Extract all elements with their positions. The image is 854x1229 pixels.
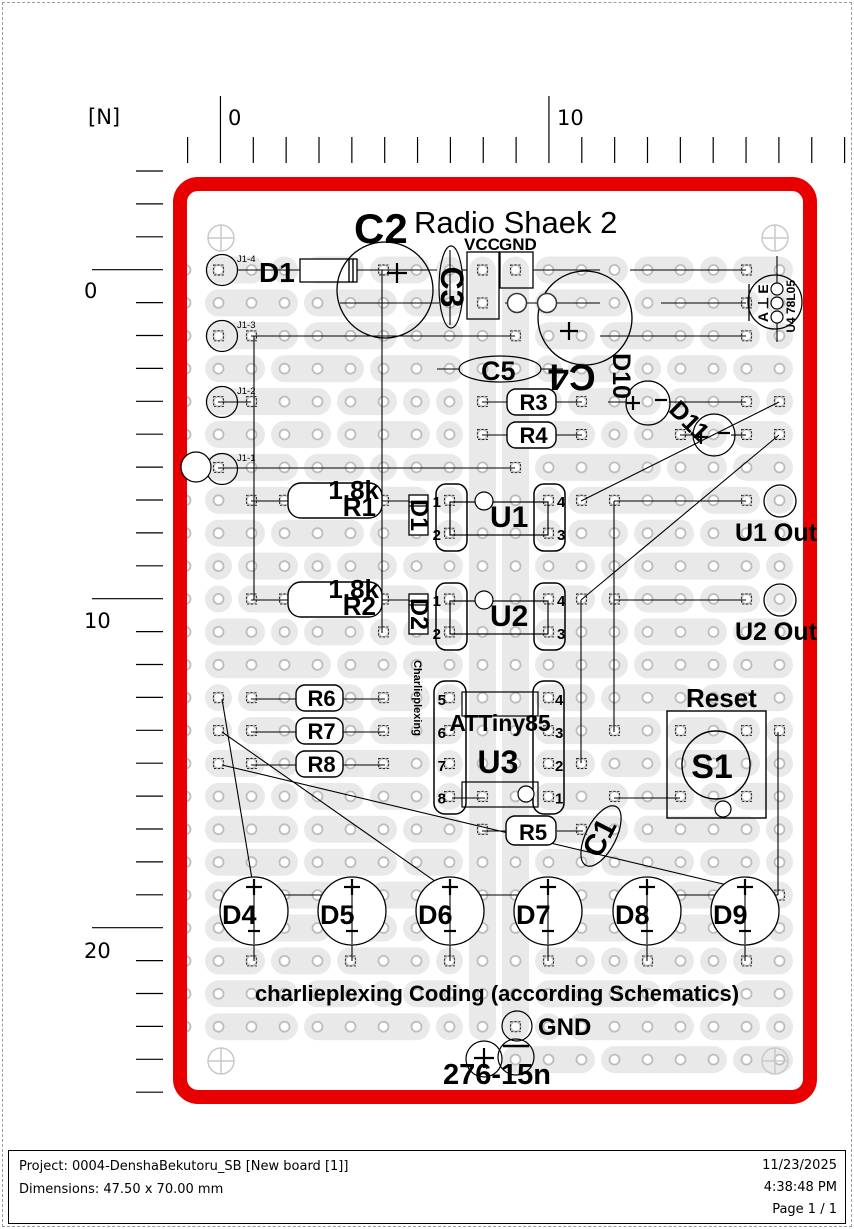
pin-number: 8 bbox=[438, 791, 446, 808]
hole bbox=[412, 824, 422, 834]
hole bbox=[280, 1022, 290, 1032]
hole bbox=[346, 693, 356, 703]
hole bbox=[445, 430, 455, 440]
pin-number: 3 bbox=[555, 725, 563, 742]
hole bbox=[577, 956, 587, 966]
hole bbox=[478, 791, 488, 801]
hole bbox=[775, 759, 785, 769]
pin-number: 3 bbox=[557, 626, 565, 643]
hole bbox=[742, 824, 752, 834]
hole bbox=[214, 265, 224, 275]
ref-D10: D10 bbox=[607, 353, 635, 399]
hole bbox=[280, 857, 290, 867]
led-ref: D8 bbox=[615, 900, 650, 930]
regulator-pin bbox=[771, 297, 783, 309]
led-ref: D5 bbox=[320, 900, 355, 930]
switch-label: Reset bbox=[686, 683, 757, 713]
hole bbox=[379, 857, 389, 867]
ref-C5: C5 bbox=[481, 356, 516, 386]
hole bbox=[676, 726, 686, 736]
footer-time: 4:38:48 PM bbox=[762, 1177, 837, 1199]
hole bbox=[511, 857, 521, 867]
pin-number: 4 bbox=[555, 692, 564, 709]
hole bbox=[643, 627, 653, 637]
hole bbox=[445, 462, 455, 472]
hole bbox=[709, 791, 719, 801]
hole bbox=[709, 364, 719, 374]
hole bbox=[313, 660, 323, 670]
hole bbox=[643, 791, 653, 801]
hole bbox=[709, 528, 719, 538]
hole bbox=[577, 1055, 587, 1065]
hole bbox=[247, 956, 257, 966]
hole bbox=[544, 759, 554, 769]
hole bbox=[709, 1022, 719, 1032]
hole bbox=[643, 561, 653, 571]
hole bbox=[709, 857, 719, 867]
hole bbox=[379, 627, 389, 637]
hole bbox=[610, 1022, 620, 1032]
footer-date: 11/23/2025 bbox=[762, 1155, 837, 1177]
hole bbox=[247, 693, 257, 703]
hole bbox=[280, 430, 290, 440]
hole bbox=[775, 693, 785, 703]
hole bbox=[313, 528, 323, 538]
hole bbox=[247, 759, 257, 769]
output-label: U1 Out bbox=[735, 519, 818, 547]
hole bbox=[412, 561, 422, 571]
hole bbox=[577, 561, 587, 571]
hole bbox=[511, 956, 521, 966]
hole bbox=[313, 561, 323, 571]
hole bbox=[643, 397, 653, 407]
hole bbox=[742, 364, 752, 374]
hole bbox=[511, 462, 521, 472]
hole bbox=[346, 726, 356, 736]
hole bbox=[280, 660, 290, 670]
hole bbox=[478, 627, 488, 637]
hole bbox=[445, 693, 455, 703]
hole bbox=[478, 561, 488, 571]
hole bbox=[412, 956, 422, 966]
hole bbox=[610, 265, 620, 275]
hole bbox=[742, 660, 752, 670]
hole bbox=[247, 660, 257, 670]
hole bbox=[247, 561, 257, 571]
footer-project: Project: 0004-DenshaBekutoru_SB [New boa… bbox=[19, 1155, 348, 1178]
hole bbox=[775, 265, 785, 275]
hole bbox=[676, 594, 686, 604]
hole bbox=[214, 726, 224, 736]
hole bbox=[775, 1022, 785, 1032]
hole bbox=[280, 759, 290, 769]
hole bbox=[676, 561, 686, 571]
hole bbox=[478, 857, 488, 867]
hole bbox=[280, 824, 290, 834]
hole bbox=[676, 364, 686, 374]
ruler-unit-label: [N] bbox=[88, 105, 120, 129]
hole bbox=[445, 759, 455, 769]
hole bbox=[214, 857, 224, 867]
hole bbox=[676, 956, 686, 966]
hole bbox=[709, 627, 719, 637]
hole bbox=[379, 726, 389, 736]
hole bbox=[280, 364, 290, 374]
hole bbox=[643, 693, 653, 703]
hole bbox=[214, 989, 224, 999]
hole bbox=[775, 495, 785, 505]
hole bbox=[643, 759, 653, 769]
hole bbox=[313, 627, 323, 637]
hole bbox=[775, 364, 785, 374]
hole bbox=[412, 759, 422, 769]
hole bbox=[511, 265, 521, 275]
hole bbox=[379, 430, 389, 440]
hole bbox=[346, 857, 356, 867]
hole bbox=[742, 594, 752, 604]
hole bbox=[280, 726, 290, 736]
hole bbox=[346, 824, 356, 834]
hole bbox=[478, 660, 488, 670]
hole bbox=[247, 824, 257, 834]
connector-pad-label: J1-1 bbox=[237, 453, 255, 464]
hole bbox=[445, 397, 455, 407]
hole bbox=[247, 364, 257, 374]
hole bbox=[511, 1022, 521, 1032]
hole bbox=[643, 528, 653, 538]
regulator-pin-label: E bbox=[755, 284, 771, 293]
hole bbox=[742, 791, 752, 801]
hole bbox=[214, 1022, 224, 1032]
hole bbox=[214, 364, 224, 374]
hole bbox=[412, 1022, 422, 1032]
hole bbox=[676, 693, 686, 703]
hole bbox=[742, 989, 752, 999]
hole bbox=[643, 495, 653, 505]
hole bbox=[214, 331, 224, 341]
hole bbox=[247, 857, 257, 867]
hole bbox=[610, 462, 620, 472]
hole bbox=[247, 594, 257, 604]
hole bbox=[742, 1055, 752, 1065]
resistor-ref: R4 bbox=[519, 423, 548, 448]
hole bbox=[379, 759, 389, 769]
led-ref: D7 bbox=[516, 900, 551, 930]
hole bbox=[280, 791, 290, 801]
hole bbox=[379, 561, 389, 571]
hole bbox=[742, 1022, 752, 1032]
hole bbox=[313, 956, 323, 966]
large-pad bbox=[538, 294, 557, 313]
hole bbox=[643, 594, 653, 604]
hole bbox=[247, 528, 257, 538]
hole bbox=[775, 397, 785, 407]
hole bbox=[709, 594, 719, 604]
regulator-part-label: 78L05 bbox=[784, 280, 798, 314]
ruler-left-label: 0 bbox=[84, 279, 97, 303]
hole bbox=[775, 331, 785, 341]
regulator-pin-label: A bbox=[755, 312, 771, 322]
hole bbox=[544, 693, 554, 703]
hole bbox=[709, 956, 719, 966]
hole bbox=[511, 561, 521, 571]
hole bbox=[379, 824, 389, 834]
connector-pad-label: J1-2 bbox=[237, 386, 255, 397]
ref-D2-small: D2 bbox=[405, 598, 433, 630]
hole bbox=[214, 759, 224, 769]
hole bbox=[544, 462, 554, 472]
hole bbox=[775, 989, 785, 999]
pin-number: 4 bbox=[557, 593, 566, 610]
hole bbox=[247, 627, 257, 637]
hole bbox=[313, 298, 323, 308]
hole bbox=[775, 791, 785, 801]
led-ref: D6 bbox=[418, 900, 453, 930]
hole bbox=[214, 824, 224, 834]
large-pad bbox=[508, 294, 527, 313]
resistor-ref: R2 bbox=[343, 591, 376, 621]
coding-note: charlieplexing Coding (according Schemat… bbox=[255, 981, 739, 1006]
hole bbox=[214, 594, 224, 604]
hole bbox=[346, 956, 356, 966]
hole bbox=[346, 759, 356, 769]
hole bbox=[379, 462, 389, 472]
hole bbox=[544, 561, 554, 571]
hole bbox=[775, 956, 785, 966]
hole bbox=[412, 397, 422, 407]
hole bbox=[775, 824, 785, 834]
hole bbox=[676, 627, 686, 637]
ruler-top-label: 0 bbox=[228, 106, 241, 130]
regulator-pin-label: ⊥ bbox=[755, 297, 771, 309]
regulator-ref: U4 bbox=[784, 317, 798, 333]
hole bbox=[214, 430, 224, 440]
hole bbox=[742, 857, 752, 867]
hole bbox=[379, 791, 389, 801]
hole bbox=[478, 462, 488, 472]
u3-ref: U3 bbox=[478, 744, 519, 780]
hole bbox=[379, 1022, 389, 1032]
hole bbox=[676, 528, 686, 538]
hole bbox=[577, 462, 587, 472]
hole bbox=[280, 627, 290, 637]
pin-number: 2 bbox=[555, 758, 563, 775]
hole bbox=[610, 430, 620, 440]
hole bbox=[478, 298, 488, 308]
switch-ref: S1 bbox=[691, 748, 733, 786]
pin-number: 1 bbox=[555, 791, 563, 808]
pin-number: 7 bbox=[438, 758, 446, 775]
hole bbox=[412, 462, 422, 472]
hole bbox=[445, 824, 455, 834]
hole bbox=[643, 364, 653, 374]
hole bbox=[346, 1022, 356, 1032]
hole bbox=[247, 1022, 257, 1032]
hole bbox=[247, 430, 257, 440]
regulator-pin bbox=[771, 283, 783, 295]
hole bbox=[742, 956, 752, 966]
hole bbox=[214, 528, 224, 538]
hole bbox=[643, 1055, 653, 1065]
pin-number: 4 bbox=[557, 494, 566, 511]
hole bbox=[643, 726, 653, 736]
hole bbox=[511, 660, 521, 670]
hole bbox=[544, 660, 554, 670]
hole bbox=[280, 397, 290, 407]
hole bbox=[445, 1022, 455, 1032]
hole bbox=[346, 397, 356, 407]
u3-part-label: ATTiny85 bbox=[449, 710, 551, 736]
hole bbox=[676, 824, 686, 834]
hole bbox=[643, 430, 653, 440]
hole bbox=[610, 298, 620, 308]
hole bbox=[346, 430, 356, 440]
hole bbox=[742, 462, 752, 472]
pin-number: 6 bbox=[438, 725, 446, 742]
hole bbox=[280, 298, 290, 308]
hole bbox=[577, 331, 587, 341]
hole bbox=[280, 462, 290, 472]
hole bbox=[412, 791, 422, 801]
pin-number: 5 bbox=[438, 692, 446, 709]
hole bbox=[445, 561, 455, 571]
hole bbox=[379, 364, 389, 374]
regulator-pin bbox=[771, 311, 783, 323]
hole bbox=[346, 528, 356, 538]
hole bbox=[676, 660, 686, 670]
hole bbox=[709, 462, 719, 472]
ruler-top-label: 10 bbox=[557, 106, 584, 130]
footer-dimensions: Dimensions: 47.50 x 70.00 mm bbox=[19, 1178, 348, 1201]
hole bbox=[379, 397, 389, 407]
hole bbox=[742, 495, 752, 505]
hole bbox=[610, 791, 620, 801]
hole bbox=[775, 561, 785, 571]
ref-D1: D1 bbox=[259, 257, 295, 288]
hole bbox=[313, 824, 323, 834]
hole bbox=[247, 298, 257, 308]
pin-number: 3 bbox=[557, 527, 565, 544]
hole bbox=[478, 693, 488, 703]
hole bbox=[577, 528, 587, 538]
edge-pad bbox=[181, 452, 211, 482]
ref-C2: C2 bbox=[354, 205, 408, 252]
hole bbox=[775, 660, 785, 670]
hole bbox=[709, 660, 719, 670]
u3-side-label: Charlieplexing bbox=[411, 660, 423, 736]
hole bbox=[346, 561, 356, 571]
hole bbox=[775, 726, 785, 736]
hole bbox=[379, 660, 389, 670]
battery-part-label: 276-15n bbox=[443, 1059, 551, 1091]
hole bbox=[346, 627, 356, 637]
hole bbox=[709, 495, 719, 505]
hole bbox=[775, 594, 785, 604]
hole bbox=[511, 693, 521, 703]
hole bbox=[478, 1022, 488, 1032]
hole bbox=[247, 495, 257, 505]
hole bbox=[280, 528, 290, 538]
hole bbox=[214, 495, 224, 505]
hole bbox=[247, 791, 257, 801]
hole bbox=[379, 693, 389, 703]
hole bbox=[214, 627, 224, 637]
footer: Project: 0004-DenshaBekutoru_SB [New boa… bbox=[8, 1150, 846, 1224]
hole bbox=[775, 1055, 785, 1065]
footer-page: Page 1 / 1 bbox=[762, 1199, 837, 1221]
u3-dot bbox=[518, 786, 534, 802]
hole bbox=[643, 660, 653, 670]
ref-D1-small: D1 bbox=[405, 499, 433, 531]
hole bbox=[313, 364, 323, 374]
hole bbox=[643, 1022, 653, 1032]
hole bbox=[676, 791, 686, 801]
hole bbox=[313, 1022, 323, 1032]
hole bbox=[214, 298, 224, 308]
hole bbox=[346, 364, 356, 374]
hole bbox=[544, 331, 554, 341]
hole bbox=[676, 857, 686, 867]
hole bbox=[247, 726, 257, 736]
hole bbox=[577, 791, 587, 801]
vcc-header-label: VCC bbox=[464, 235, 500, 254]
ruler-left-label: 10 bbox=[84, 609, 111, 633]
cap-C4-body bbox=[538, 271, 632, 365]
hole bbox=[214, 791, 224, 801]
hole bbox=[676, 1022, 686, 1032]
hole bbox=[214, 956, 224, 966]
resistor-ref: R5 bbox=[519, 820, 547, 845]
gnd-pad-label: GND bbox=[538, 1014, 591, 1041]
hole bbox=[478, 956, 488, 966]
hole bbox=[214, 462, 224, 472]
hole bbox=[445, 857, 455, 867]
hole bbox=[643, 298, 653, 308]
hole bbox=[445, 660, 455, 670]
hole bbox=[214, 561, 224, 571]
hole bbox=[610, 956, 620, 966]
hole bbox=[709, 561, 719, 571]
dip-ref: U2 bbox=[490, 600, 528, 633]
led-ref: D4 bbox=[222, 900, 257, 930]
hole bbox=[610, 759, 620, 769]
hole bbox=[544, 857, 554, 867]
hole bbox=[346, 462, 356, 472]
hole bbox=[643, 824, 653, 834]
hole bbox=[676, 759, 686, 769]
hole bbox=[775, 462, 785, 472]
hole bbox=[280, 956, 290, 966]
hole bbox=[610, 1055, 620, 1065]
hole bbox=[313, 397, 323, 407]
hole bbox=[709, 1055, 719, 1065]
hole bbox=[280, 561, 290, 571]
hole bbox=[379, 956, 389, 966]
output-label: U2 Out bbox=[735, 618, 818, 646]
hole bbox=[379, 528, 389, 538]
resistor-ref: R8 bbox=[307, 752, 335, 777]
resistor-ref: R1 bbox=[343, 492, 376, 522]
hole bbox=[412, 430, 422, 440]
hole bbox=[445, 791, 455, 801]
hole bbox=[313, 430, 323, 440]
connector-pad-label: J1-4 bbox=[237, 254, 255, 265]
resistor-ref: R6 bbox=[307, 686, 335, 711]
hole bbox=[775, 857, 785, 867]
hole bbox=[676, 1055, 686, 1065]
hole bbox=[676, 495, 686, 505]
gnd-header-label: GND bbox=[499, 235, 537, 254]
